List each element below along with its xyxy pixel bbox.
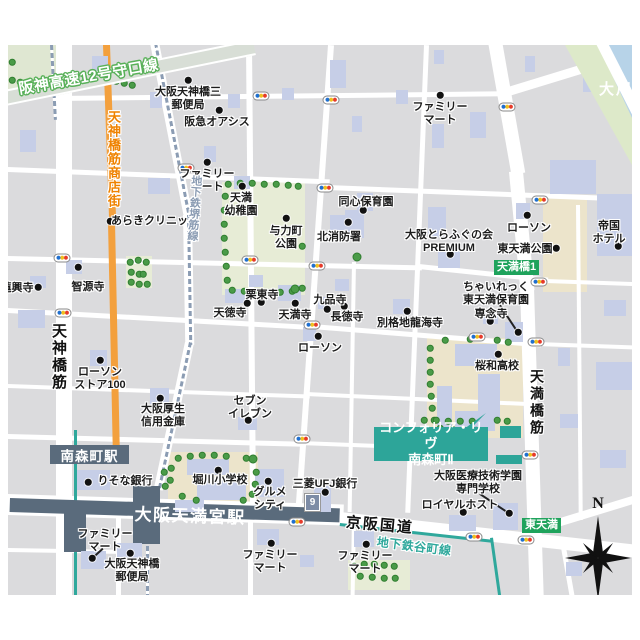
poi-label: 大阪天神橋 郵便局 (105, 558, 160, 584)
river-label: 大川 (599, 78, 632, 99)
vertical-road-label: 天神橋筋 (48, 323, 69, 391)
poi-label: ファミリー マート (78, 528, 133, 554)
poi-label: りそな銀行 (98, 475, 153, 488)
tree-icon (199, 452, 206, 459)
traffic-light-icon (466, 533, 483, 542)
poi-label: グルメ シティ (254, 486, 287, 512)
property-building (500, 426, 521, 438)
tree-icon (9, 77, 16, 84)
tree-icon (427, 381, 434, 388)
tree-icon (135, 257, 142, 264)
tanimachi-subway-line (490, 538, 501, 595)
poi-dot (292, 300, 299, 307)
tree-icon (353, 253, 362, 262)
poi-dot (157, 395, 164, 402)
traffic-light-icon (55, 309, 72, 318)
poi-dot (215, 467, 222, 474)
tree-icon (222, 249, 229, 256)
tree-icon (224, 277, 231, 284)
poi-dot (315, 333, 322, 340)
traffic-light-icon (54, 254, 71, 263)
poi-dot (85, 479, 92, 486)
building (228, 94, 240, 108)
tree-icon (144, 281, 151, 288)
poi-dot (244, 300, 251, 307)
tree-icon (221, 221, 228, 228)
intersection-badge-higashitenma: 東天満 (522, 518, 561, 533)
poi-label: 別格地龍海寺 (377, 317, 443, 330)
poi-dot (345, 219, 352, 226)
tree-icon (211, 452, 218, 459)
tree-icon (427, 357, 434, 364)
poi-label: 東天満公園 (498, 243, 553, 256)
poi-dot (127, 550, 134, 557)
tree-icon (295, 183, 302, 190)
traffic-light-icon (469, 333, 486, 342)
poi-label: 長徳寺 (331, 311, 364, 324)
tree-icon (162, 483, 169, 490)
poi-dot (553, 245, 560, 252)
tree-icon (175, 455, 182, 462)
poi-dot (437, 92, 444, 99)
traffic-light-icon (323, 96, 340, 105)
property-callout-line1: コンフォリア・リヴ (374, 420, 488, 453)
building (600, 450, 626, 468)
poi-label: 専念寺 (475, 308, 508, 321)
shopping-street-road (108, 222, 120, 446)
building (20, 130, 36, 152)
poi-dot (265, 478, 272, 485)
tree-icon (223, 263, 230, 270)
building (470, 112, 486, 138)
poi-dot (324, 306, 331, 313)
tree-icon (161, 469, 168, 476)
poi-label: 天満寺 (279, 309, 312, 322)
building (449, 515, 476, 531)
poi-dot (268, 540, 275, 547)
building (335, 279, 349, 291)
poi-label: 阪急オアシス (184, 116, 250, 129)
poi-label: 智源寺 (72, 281, 105, 294)
poi-label: セブン イレブン (228, 395, 272, 421)
tree-icon (428, 393, 435, 400)
tree-icon (143, 259, 150, 266)
vertical-road-label: 天満橋筋 (527, 369, 547, 437)
poi-dot (363, 541, 370, 548)
poi-dot (97, 357, 104, 364)
traffic-light-icon (294, 435, 311, 444)
building (148, 178, 170, 194)
poi-dot (89, 555, 96, 562)
poi-dot (283, 215, 290, 222)
traffic-light-icon (242, 256, 259, 265)
vertical-road-label: 地下鉄堺筋線 (184, 175, 205, 242)
map-world: 大阪天神橋三 郵便局阪急オアシスファミリー マートファミリー マート天満 幼稚園… (8, 45, 632, 595)
property-callout-line2: 南森町Ⅱ (374, 452, 488, 468)
poi-dot (495, 351, 502, 358)
tree-icon (136, 281, 143, 288)
tree-icon (285, 182, 292, 189)
poi-label: ローソン (298, 342, 342, 355)
poi-label: 九品寺 (314, 294, 347, 307)
tree-icon (392, 575, 399, 582)
traffic-light-icon (289, 518, 306, 527)
tree-icon (229, 287, 236, 294)
property-callout: コンフォリア・リヴ 南森町Ⅱ (374, 427, 488, 461)
poi-dot (239, 183, 246, 190)
poi-label: 大阪天神橋三 郵便局 (155, 86, 221, 112)
poi-label: ファミリー マート (413, 101, 468, 127)
route-number-badge: 9 (305, 494, 320, 511)
poi-label: ファミリー マート (243, 549, 298, 575)
poi-label: 同心保育園 (339, 196, 394, 209)
road (348, 262, 356, 512)
tree-icon (167, 477, 174, 484)
tree-icon (249, 180, 256, 187)
tree-icon (9, 59, 16, 66)
compass-north-label: N (592, 495, 604, 512)
property-building (496, 455, 522, 464)
tree-icon (179, 493, 186, 500)
poi-dot (524, 212, 531, 219)
poi-label: 大阪厚生 信用金庫 (141, 403, 185, 429)
tree-icon (494, 337, 501, 344)
compass-icon: N (560, 492, 632, 595)
tree-icon (299, 285, 306, 292)
tree-icon (273, 181, 280, 188)
poi-label: 北消防署 (317, 231, 361, 244)
poi-dot (185, 77, 192, 84)
building (330, 60, 346, 88)
poi-dot (216, 107, 223, 114)
intersection-badge-tenmabashi1: 天満橋1 (494, 260, 539, 275)
traffic-light-icon (532, 196, 549, 205)
tree-icon (429, 405, 436, 412)
poi-label: 蓮興寺 (8, 282, 34, 295)
building (282, 88, 294, 100)
tree-icon (221, 235, 228, 242)
poi-label: 三菱UFJ銀行 (293, 478, 358, 491)
poi-dot (75, 264, 82, 271)
tree-icon (168, 465, 175, 472)
traffic-light-icon (499, 103, 516, 112)
traffic-light-icon (531, 278, 548, 287)
poi-dot (404, 308, 411, 315)
poi-label: ちゃいれっく 東天満保育園 (463, 281, 529, 307)
station-label-osakatemmangu: 大阪天満宮駅 (134, 500, 246, 528)
building (525, 56, 535, 72)
tree-icon (187, 453, 194, 460)
poi-dot (506, 510, 513, 517)
tree-icon (442, 337, 449, 344)
traffic-light-icon (528, 338, 545, 347)
station-label-minamimorimachi: 南森町駅 (50, 445, 129, 464)
poi-dot (515, 329, 522, 336)
building (558, 348, 570, 366)
tree-icon (127, 259, 134, 266)
poi-label: 堀川小学校 (193, 474, 248, 487)
tree-icon (249, 455, 258, 464)
building (432, 124, 444, 148)
poi-dot (204, 159, 211, 166)
traffic-light-icon (522, 451, 539, 460)
tree-icon (427, 345, 434, 352)
building (18, 310, 45, 328)
building (596, 362, 632, 390)
poi-label: 天満 幼稚園 (225, 192, 258, 218)
poi-dot (35, 284, 42, 291)
building (604, 300, 626, 316)
tree-icon (223, 453, 230, 460)
building (396, 90, 408, 104)
tree-icon (505, 339, 512, 346)
tree-icon (427, 369, 434, 376)
poi-label: 大阪とらふぐの会 PREMIUM (405, 229, 493, 255)
poi-label: 天徳寺 (214, 307, 247, 320)
tree-icon (291, 285, 300, 294)
tree-icon (261, 181, 268, 188)
poi-label: ローソン (507, 222, 551, 235)
traffic-light-icon (518, 536, 535, 545)
tree-icon (140, 271, 147, 278)
poi-label: 桜和高校 (475, 360, 519, 373)
poi-label: ファミリー マート (338, 550, 393, 576)
tree-icon (129, 82, 136, 89)
poi-label: ローソン ストア100 (74, 366, 125, 392)
tree-icon (240, 497, 247, 504)
traffic-light-icon (317, 184, 334, 193)
tree-icon (253, 469, 260, 476)
building (187, 459, 229, 475)
tree-icon (128, 269, 135, 276)
road (520, 288, 544, 595)
building (300, 555, 314, 567)
traffic-light-icon (253, 92, 270, 101)
building (249, 275, 263, 287)
building (560, 414, 578, 428)
road (537, 342, 632, 349)
vertical-road-label: 天神橋筋商店街 (104, 110, 123, 208)
poi-label: 与力町 公園 (270, 225, 303, 251)
tree-icon (128, 279, 135, 286)
poi-label: 帝国 ホテル (593, 220, 626, 246)
building (352, 116, 362, 132)
map-canvas: 大阪天神橋三 郵便局阪急オアシスファミリー マートファミリー マート天満 幼稚園… (8, 45, 632, 595)
poi-label: ロイヤルホスト (422, 499, 499, 512)
poi-label: 栗東寺 (246, 289, 279, 302)
traffic-light-icon (309, 262, 326, 271)
building (434, 50, 444, 64)
poi-label: 大阪医療技術学園 専門学校 (434, 470, 522, 496)
tree-icon (504, 418, 511, 425)
tree-icon (494, 417, 501, 424)
tanimachi-subway-line (74, 552, 77, 595)
